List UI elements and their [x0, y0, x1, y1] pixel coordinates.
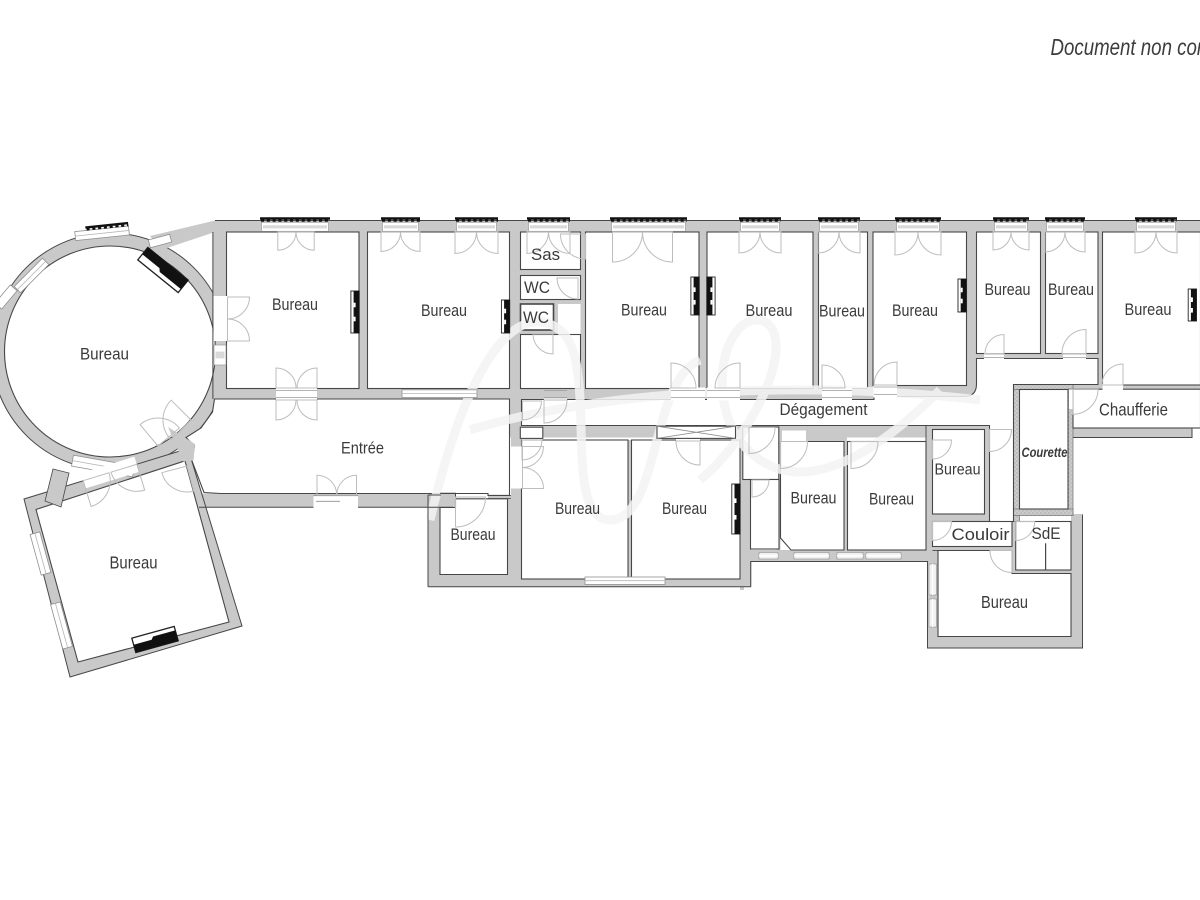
svg-text:Bureau: Bureau: [746, 301, 793, 320]
svg-text:Bureau: Bureau: [421, 301, 467, 320]
svg-text:Sas: Sas: [531, 246, 560, 264]
svg-text:Bureau: Bureau: [621, 301, 667, 320]
svg-text:Bureau: Bureau: [985, 281, 1031, 299]
svg-text:Bureau: Bureau: [451, 526, 496, 544]
svg-text:WC: WC: [524, 279, 550, 297]
svg-text:Bureau: Bureau: [981, 592, 1028, 612]
svg-text:Chaufferie: Chaufferie: [1099, 400, 1168, 420]
svg-text:Couloir: Couloir: [952, 525, 1010, 544]
svg-text:Bureau: Bureau: [869, 491, 914, 509]
svg-text:Bureau: Bureau: [1048, 281, 1094, 299]
svg-text:Dégagement: Dégagement: [780, 400, 868, 419]
svg-text:Bureau: Bureau: [80, 345, 129, 364]
svg-text:Bureau: Bureau: [791, 490, 837, 508]
svg-text:Bureau: Bureau: [1125, 300, 1172, 319]
svg-text:SdE: SdE: [1032, 524, 1061, 543]
svg-text:Bureau: Bureau: [892, 301, 938, 320]
svg-text:Document non contractuel: Document non contractuel: [1051, 34, 1200, 60]
svg-text:Entrée: Entrée: [341, 439, 384, 458]
svg-text:Bureau: Bureau: [935, 462, 981, 479]
svg-text:Bureau: Bureau: [662, 499, 707, 518]
svg-text:Bureau: Bureau: [110, 553, 158, 573]
svg-text:Bureau: Bureau: [272, 295, 318, 314]
svg-text:Bureau: Bureau: [819, 302, 865, 321]
svg-text:Courette: Courette: [1022, 445, 1068, 460]
svg-text:WC: WC: [523, 309, 549, 327]
svg-text:Bureau: Bureau: [555, 499, 600, 518]
